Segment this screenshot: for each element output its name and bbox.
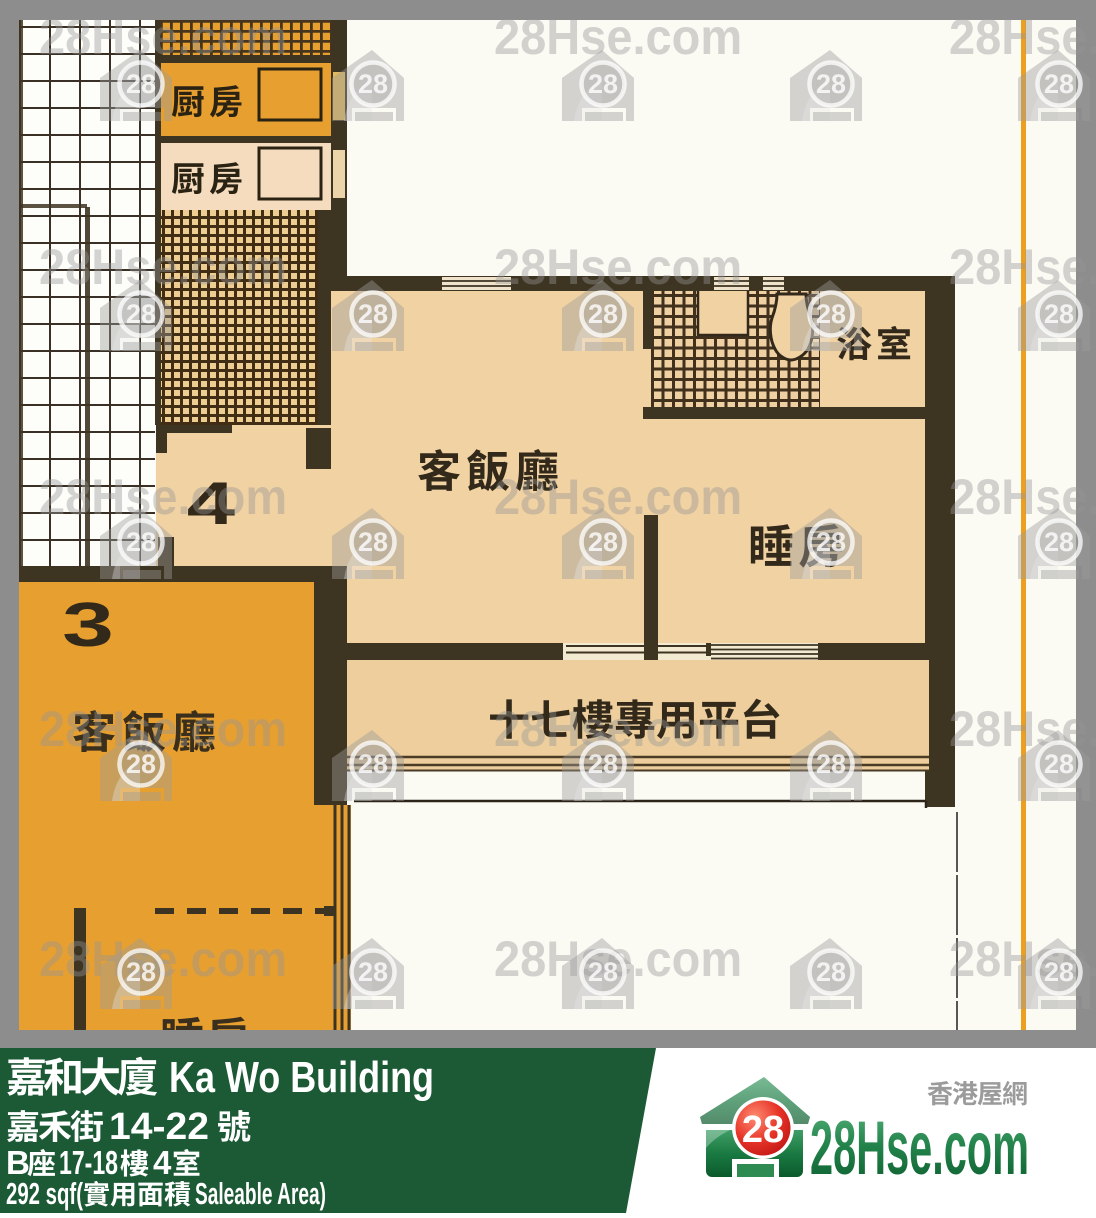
- svg-text:Saleable Area): Saleable Area): [195, 1176, 326, 1211]
- svg-text:28Hse.com: 28Hse.com: [39, 10, 287, 66]
- svg-text:28Hse.com: 28Hse.com: [949, 10, 1096, 66]
- svg-text:28Hse.com: 28Hse.com: [39, 470, 287, 526]
- svg-text:28Hse.com: 28Hse.com: [810, 1106, 1029, 1191]
- svg-text:Ka Wo Building: Ka Wo Building: [169, 1053, 434, 1102]
- svg-text:28Hse.com: 28Hse.com: [494, 10, 742, 66]
- svg-text:28Hse.com: 28Hse.com: [39, 702, 287, 758]
- svg-text:28Hse.com: 28Hse.com: [494, 240, 742, 296]
- svg-text:28Hse.com: 28Hse.com: [494, 470, 742, 526]
- svg-text:28Hse.com: 28Hse.com: [39, 240, 287, 296]
- svg-text:292 sqf(: 292 sqf(: [6, 1176, 83, 1211]
- svg-text:28Hse.com: 28Hse.com: [949, 240, 1096, 296]
- svg-text:28Hse.com: 28Hse.com: [949, 470, 1096, 526]
- svg-text:14-22: 14-22: [109, 1106, 209, 1148]
- svg-text:4: 4: [153, 1144, 172, 1181]
- svg-text:28: 28: [742, 1109, 784, 1151]
- svg-text:3: 3: [62, 590, 114, 660]
